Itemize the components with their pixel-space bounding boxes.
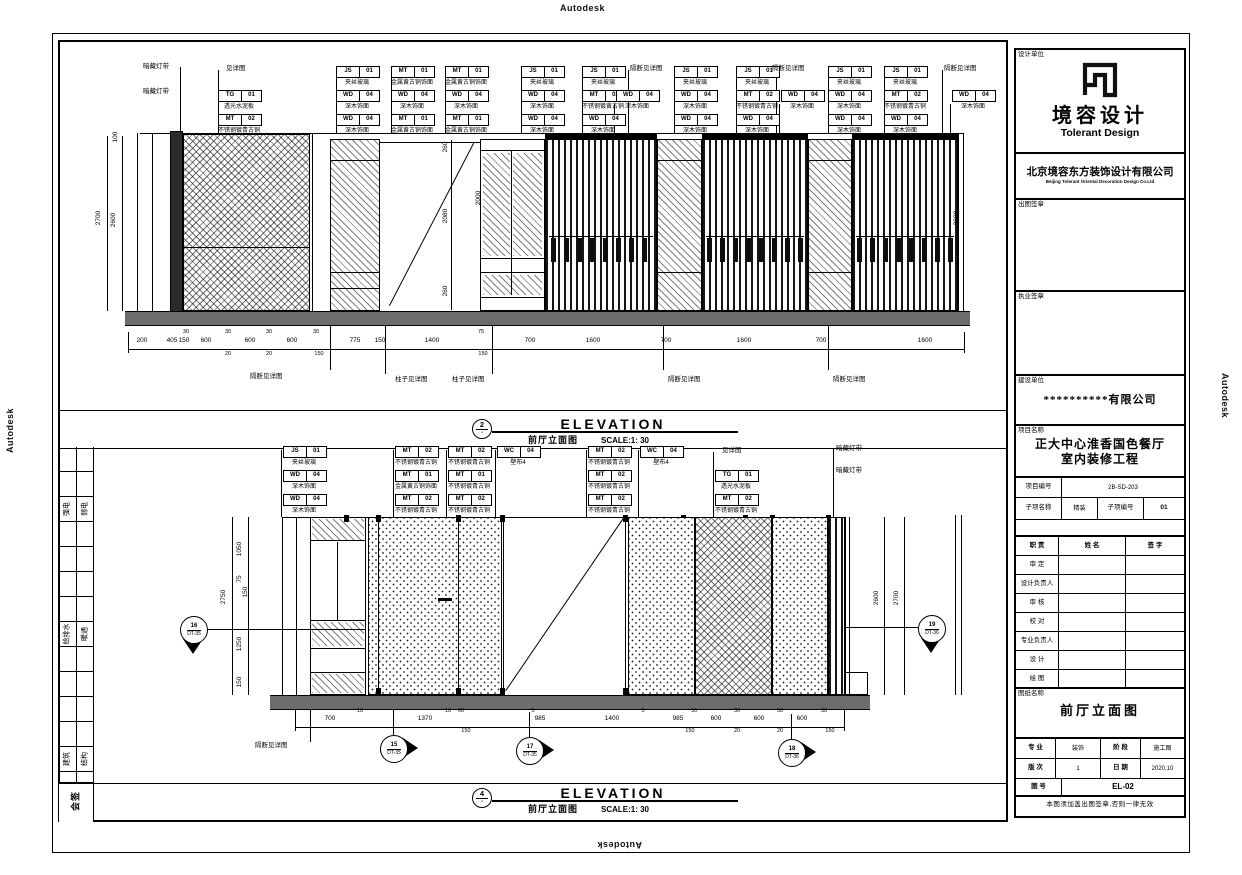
- glass-pane: [312, 674, 364, 693]
- leader-line: [336, 70, 337, 133]
- project-number-row: 项目编号 2B-SD-203: [1016, 478, 1184, 498]
- cad-line: [963, 133, 964, 311]
- leader-line: [674, 70, 675, 133]
- dimension-line: [128, 349, 965, 350]
- cad-line: [849, 517, 850, 695]
- cad-line: [480, 297, 545, 298]
- cad-line: [312, 133, 313, 311]
- elevation-number: 2: [476, 420, 488, 430]
- cad-line: [310, 648, 366, 649]
- sheet-name-label: 图纸名称: [1018, 690, 1044, 698]
- leader-line: [206, 629, 366, 630]
- cad-line: [296, 517, 297, 695]
- leader-line: [950, 104, 951, 133]
- role-label: 专业负责人: [1016, 632, 1059, 650]
- wood-slat-screen: [852, 133, 958, 311]
- cad-line: [232, 517, 233, 695]
- sheet-name-section: 图纸名称 前厅立面图: [1016, 689, 1184, 739]
- leader-line: [828, 326, 829, 370]
- dimension-line: [295, 727, 845, 728]
- cad-line: [964, 332, 965, 353]
- leader-line: [281, 450, 282, 517]
- leader-line: [446, 450, 447, 517]
- cad-line: [128, 332, 129, 353]
- stage-label: 阶 段: [1101, 739, 1141, 758]
- role-sign-cell: [1126, 632, 1184, 650]
- cad-line: [706, 236, 804, 237]
- sheet-number-label: 图 号: [1016, 779, 1062, 795]
- cad-line: [282, 517, 283, 695]
- role-label: 审 核: [1016, 594, 1059, 612]
- company-name-cn: 北京境容东方装饰设计有限公司: [1016, 166, 1184, 179]
- role-name-cell: [1059, 651, 1126, 669]
- logo-en: Tolerant Design: [1016, 127, 1184, 139]
- logo-mark-icon: [1016, 60, 1184, 105]
- role-row: 审 核: [1016, 594, 1184, 613]
- wood-slat-screen: [545, 133, 657, 311]
- leader-line: [942, 70, 943, 133]
- project-name-line1: 正大中心淮香国色餐厅: [1016, 437, 1184, 452]
- validity-note: 本图须加盖出图签章,否则一律无效: [1016, 797, 1184, 813]
- drawing-seal-label: 出图签章: [1018, 201, 1044, 209]
- cad-line: [808, 272, 852, 273]
- cad-line: [844, 710, 845, 731]
- elevation-number-dash: -: [481, 430, 483, 437]
- cad-line: [451, 140, 452, 310]
- roles-rows: 审 定 设计负责人 审 核 校 对: [1016, 556, 1184, 689]
- sheet-number-value: EL-02: [1062, 779, 1184, 795]
- leader-line: [521, 70, 522, 133]
- title-block: 设计单位 境容设计 Tolerant Design 北京境容东方装饰设计有限公司…: [1014, 48, 1186, 818]
- cad-line: [310, 672, 366, 673]
- glass-partition: [657, 139, 702, 311]
- role-row: 绘 图: [1016, 670, 1184, 689]
- leader-line: [776, 70, 777, 133]
- elevation-scale: SCALE:1: 30: [601, 436, 649, 446]
- sheet-number-row: 图 号 EL-02: [1016, 779, 1184, 797]
- cad-line: [310, 540, 366, 541]
- role-label: 绘 图: [1016, 670, 1059, 689]
- cad-line: [152, 133, 153, 311]
- role-row: 设计负责人: [1016, 575, 1184, 594]
- specialty-label: 专 业: [1016, 739, 1056, 758]
- autodesk-watermark-right: Autodesk: [1219, 373, 1230, 418]
- cad-line: [503, 517, 504, 695]
- cad-line: [183, 247, 310, 248]
- client-section: 建设单位 **********有限公司: [1016, 376, 1184, 426]
- cad-line: [480, 150, 545, 151]
- leader-line: [845, 627, 918, 628]
- role-label: 设计负责人: [1016, 575, 1059, 593]
- role-row: 设 计: [1016, 651, 1184, 670]
- glass-door-pane: [513, 153, 542, 256]
- leader-line: [582, 70, 583, 133]
- mosaic-panel: [772, 517, 828, 695]
- cad-line: [480, 258, 545, 259]
- glass-door-pane: [483, 275, 542, 295]
- role-name-cell: [1059, 575, 1126, 593]
- role-name-cell: [1059, 594, 1126, 612]
- sheet-name: 前厅立面图: [1016, 703, 1184, 719]
- cad-line: [961, 515, 962, 695]
- leader-line: [445, 70, 446, 133]
- post-cap: [456, 688, 461, 695]
- elevation-number-dash: -: [481, 799, 483, 806]
- project-number-value: 2B-SD-203: [1062, 478, 1184, 497]
- version-value: 1: [1056, 759, 1101, 778]
- role-name-cell: [1059, 613, 1126, 631]
- column-post: [170, 131, 183, 312]
- cad-line: [380, 142, 480, 143]
- cad-line: [310, 620, 366, 621]
- signoff-footer-cell: [59, 782, 93, 822]
- cad-line: [856, 236, 954, 237]
- leader-line: [218, 70, 219, 133]
- leader-line: [628, 70, 629, 133]
- license-seal-section: 执业签章: [1016, 292, 1184, 376]
- project-number-label: 项目编号: [1016, 478, 1062, 497]
- company-name-en: Beijing Tolerant Oriental Decoration Des…: [1016, 179, 1184, 185]
- glass-partition: [330, 139, 380, 311]
- post-cap: [376, 688, 381, 695]
- leader-line: [663, 326, 664, 370]
- elevation-title-en: ELEVATION: [560, 417, 665, 431]
- leader-line: [330, 326, 331, 370]
- leader-line: [638, 450, 639, 517]
- cad-line: [625, 517, 626, 695]
- cad-line: [248, 517, 249, 695]
- stage-value: 施工图: [1141, 739, 1184, 758]
- client-name: **********有限公司: [1016, 394, 1184, 407]
- elevation-scale: SCALE:1: 30: [601, 805, 649, 815]
- roles-table: 职 责 姓 名 签 字 审 定 设计负责人 审 核: [1016, 537, 1184, 689]
- cad-line: [58, 410, 1008, 411]
- leader-line: [586, 450, 587, 517]
- leader-line: [833, 448, 834, 517]
- cad-line: [330, 272, 380, 273]
- autodesk-watermark-left: Autodesk: [5, 408, 16, 453]
- role-name-cell: [1059, 556, 1126, 574]
- subitem-number-value: 01: [1144, 498, 1184, 519]
- cad-line: [958, 133, 959, 311]
- role-label: 校 对: [1016, 613, 1059, 631]
- project-name-label: 项目名称: [1018, 427, 1044, 435]
- post-cap: [376, 515, 381, 522]
- leader-line: [736, 70, 737, 133]
- role-name-cell: [1059, 670, 1126, 689]
- role-row: 专业负责人: [1016, 632, 1184, 651]
- leader-line: [713, 452, 714, 517]
- role-sign-cell: [1126, 556, 1184, 574]
- elevation-title-en: ELEVATION: [560, 786, 665, 800]
- drawing-seal-section: 出图签章: [1016, 200, 1184, 292]
- leader-line: [495, 450, 496, 517]
- mosaic-panel: [368, 517, 502, 695]
- cad-line: [511, 150, 512, 295]
- subitem-number-label: 子项编号: [1098, 498, 1144, 519]
- cad-line: [122, 136, 123, 311]
- roles-header-name: 姓 名: [1059, 537, 1126, 555]
- roles-header-role: 职 责: [1016, 537, 1059, 555]
- project-name-section: 项目名称 正大中心淮香国色餐厅 室内装修工程: [1016, 426, 1184, 478]
- cad-line: [845, 517, 846, 695]
- glass-door-pane: [483, 153, 510, 256]
- company-section: 北京境容东方装饰设计有限公司 Beijing Tolerant Oriental…: [1016, 154, 1184, 200]
- cad-line: [545, 133, 657, 140]
- cad-line: [480, 272, 545, 273]
- client-label: 建设单位: [1018, 377, 1044, 385]
- glass-partition: [310, 517, 366, 695]
- design-unit-label: 设计单位: [1018, 51, 1044, 59]
- specialty-value: 装饰: [1056, 739, 1101, 758]
- cad-line: [137, 133, 138, 311]
- cad-line: [808, 160, 852, 161]
- cad-line: [549, 236, 653, 237]
- cad-line: [58, 448, 1008, 449]
- glass-pane: [312, 519, 364, 541]
- role-row: 校 对: [1016, 613, 1184, 632]
- autodesk-watermark-top: Autodesk: [560, 3, 605, 14]
- roles-header-row: 职 责 姓 名 签 字: [1016, 537, 1184, 556]
- cad-line: [702, 133, 808, 140]
- post-cap: [456, 515, 461, 522]
- cad-line: [458, 517, 459, 695]
- hanging-lamps: [551, 238, 651, 262]
- wall-step: [845, 672, 868, 695]
- drawing-sheet: Autodesk Autodesk Autodesk Autodesk 强电弱电…: [0, 0, 1242, 875]
- cad-line: [330, 160, 380, 161]
- glass-pane: [312, 622, 364, 646]
- role-sign-cell: [1126, 594, 1184, 612]
- baseboard: [270, 695, 870, 710]
- leader-line: [529, 712, 530, 737]
- role-sign-cell: [1126, 670, 1184, 689]
- baseboard: [125, 311, 970, 326]
- role-name-cell: [1059, 632, 1126, 650]
- leader-line: [180, 67, 181, 133]
- cad-line: [657, 160, 702, 161]
- cad-line: [337, 542, 338, 620]
- hanging-lamps: [857, 238, 953, 262]
- specialty-row: 专 业 装饰 阶 段 施工图: [1016, 739, 1184, 759]
- role-sign-cell: [1126, 651, 1184, 669]
- logo-cn: 境容设计: [1016, 105, 1184, 127]
- date-value: 2020.10: [1141, 759, 1184, 778]
- post-cap: [344, 515, 349, 522]
- subitem-label: 子项名称: [1016, 498, 1062, 519]
- leader-line: [614, 104, 615, 133]
- mesh-screen-panel: [183, 134, 310, 311]
- cad-line: [884, 517, 885, 695]
- elevation-number-bubble: 4 -: [472, 788, 492, 808]
- version-row: 版 次 1 日 期 2020.10: [1016, 759, 1184, 779]
- glass-partition: [808, 139, 852, 311]
- subitem-value: 精装: [1062, 498, 1098, 519]
- design-unit-section: 设计单位 境容设计 Tolerant Design: [1016, 50, 1184, 154]
- elevation-number: 4: [476, 789, 488, 799]
- wood-slat-screen: [702, 133, 808, 311]
- cad-line: [76, 447, 77, 822]
- leader-line: [779, 104, 780, 133]
- spacer-row: [1016, 520, 1184, 537]
- project-name-line2: 室内装修工程: [1016, 452, 1184, 467]
- validity-note-row: 本图须加盖出图签章,否则一律无效: [1016, 797, 1184, 815]
- role-label: 设 计: [1016, 651, 1059, 669]
- elevation-title-zh: 前厅立面图: [528, 804, 578, 814]
- date-label: 日 期: [1101, 759, 1141, 778]
- elevation-number-bubble: 2 -: [472, 419, 492, 439]
- leader-line: [828, 70, 829, 133]
- cad-line: [657, 272, 702, 273]
- cad-line: [107, 136, 108, 311]
- hanging-lamps: [707, 238, 803, 262]
- leader-line: [492, 326, 493, 374]
- leader-line: [310, 710, 311, 742]
- leader-line: [791, 714, 792, 739]
- role-label: 审 定: [1016, 556, 1059, 574]
- roles-header-sign: 签 字: [1126, 537, 1184, 555]
- version-label: 版 次: [1016, 759, 1056, 778]
- leader-line: [385, 326, 386, 374]
- leader-line: [393, 710, 394, 735]
- door-pull: [438, 598, 452, 601]
- cad-line: [330, 288, 380, 289]
- mesh-screen-panel: [695, 517, 772, 695]
- role-sign-cell: [1126, 613, 1184, 631]
- cad-line: [904, 517, 905, 695]
- leader-line: [391, 70, 392, 133]
- role-row: 审 定: [1016, 556, 1184, 575]
- subitem-row: 子项名称 精装 子项编号 01: [1016, 498, 1184, 520]
- role-sign-cell: [1126, 575, 1184, 593]
- cad-line: [94, 783, 1008, 784]
- license-seal-label: 执业签章: [1018, 293, 1044, 301]
- cad-line: [955, 515, 956, 695]
- cad-line: [295, 710, 296, 731]
- leader-line: [393, 450, 394, 517]
- leader-line: [884, 70, 885, 133]
- elevation-title-zh: 前厅立面图: [528, 435, 578, 445]
- mosaic-panel: [628, 517, 695, 695]
- cad-line: [852, 133, 958, 140]
- slat-post: [828, 517, 845, 695]
- cad-line: [378, 517, 379, 695]
